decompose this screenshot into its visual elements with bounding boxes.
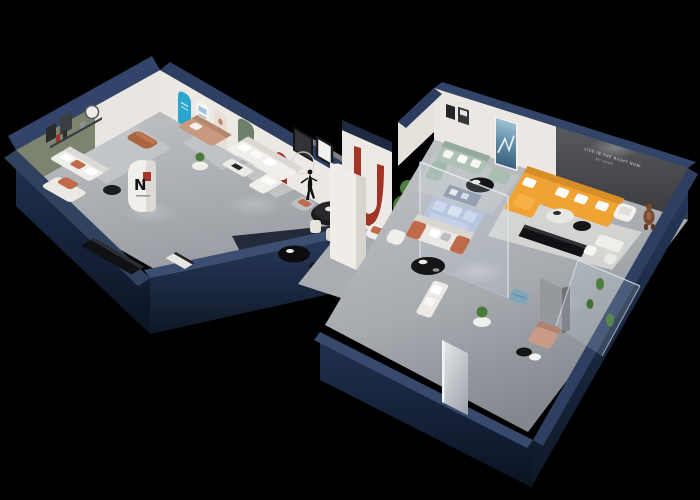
cactus	[596, 278, 604, 290]
render-stage: N	[0, 0, 700, 500]
floorplan-canvas: N	[0, 0, 700, 500]
black-coffee-table	[103, 185, 121, 195]
cactus	[606, 314, 614, 327]
blue-abstract-painting	[495, 116, 518, 171]
doorway-mirror-panel	[442, 340, 468, 415]
logo-tagline-text	[136, 195, 150, 197]
white-column-side	[356, 174, 366, 270]
floor-spotlight	[227, 193, 283, 217]
round-wall-mirror	[86, 106, 99, 119]
black-oval-coffee-table	[411, 257, 445, 275]
white-column	[330, 162, 356, 270]
brand-logo-column: N	[128, 160, 156, 212]
brand-logo-letter: N	[134, 176, 147, 194]
dining-chair	[310, 220, 321, 233]
cactus	[587, 299, 594, 309]
